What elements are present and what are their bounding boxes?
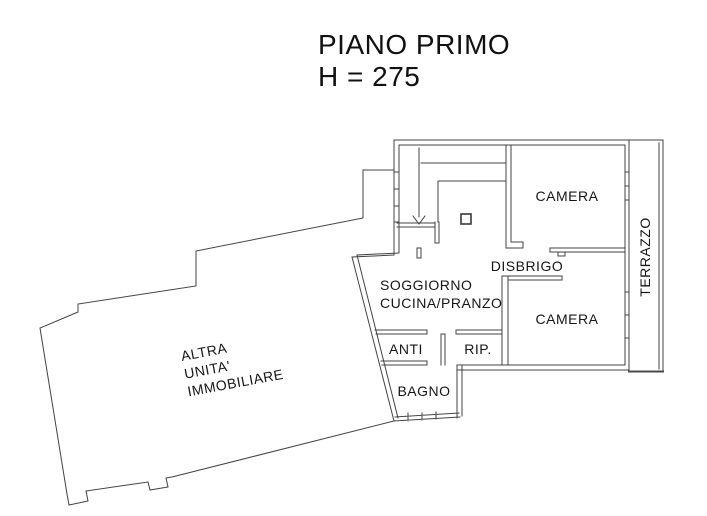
page-title: PIANO PRIMO [318,29,510,60]
height-note: H = 275 [318,61,420,92]
label-disbrigo: DISBRIGO [491,258,563,274]
label-bagno: BAGNO [397,383,450,399]
label-soggiorno: SOGGIORNO [380,277,472,293]
floor-plan: PIANO PRIMO H = 275 CAMERA DISBRIGO CAME… [0,0,707,516]
label-camera-bottom: CAMERA [536,311,599,327]
column-marker [461,214,471,224]
altra-unita-outline [40,170,394,505]
label-rip: RIP. [464,341,491,357]
entrance-arrow-icon [413,148,425,224]
label-altra-unita: ALTRA UNITA' IMMOBILIARE [180,330,285,399]
label-terrazzo: TERRAZZO [637,217,653,296]
plan-sheet: PIANO PRIMO H = 275 CAMERA DISBRIGO CAME… [0,0,707,516]
label-cucina-pranzo: CUCINA/PRANZO [380,295,502,311]
label-camera-top: CAMERA [536,188,599,204]
stairwell-lines [397,163,506,258]
label-anti: ANTI [389,341,423,357]
